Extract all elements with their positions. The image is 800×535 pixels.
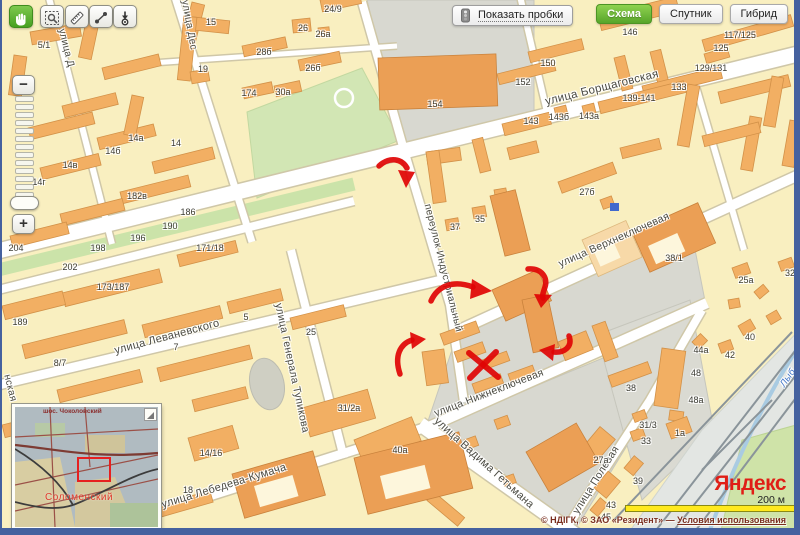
map-type-switch: Схема Спутник Гибрид [596,4,788,24]
measure-path-icon [93,10,109,26]
poi-marker [610,203,619,211]
zoom-out-button[interactable]: − [12,75,35,95]
zoom-tick[interactable] [15,136,34,142]
map-type-satellite-button[interactable]: Спутник [659,4,722,24]
show-traffic-button[interactable]: Показать пробки [452,5,573,26]
zoom-area-icon [44,10,60,26]
zoom-tick[interactable] [15,112,34,118]
zoom-tick[interactable] [15,120,34,126]
collapse-arrow-icon [147,412,154,419]
map-type-hybrid-button[interactable]: Гибрид [730,4,788,24]
traffic-light-icon [458,8,473,23]
ruler-icon [69,10,85,26]
minimap-toggle-button[interactable] [144,408,157,421]
zoom-tick[interactable] [15,96,34,102]
zoom-tick[interactable] [15,160,34,166]
zoom-tick[interactable] [15,128,34,134]
pan-tool-button[interactable] [9,5,33,28]
minimap-road-label: шос. Чоколовский [43,408,102,415]
show-traffic-label: Показать пробки [478,9,563,22]
probe-marker-icon [117,10,133,26]
scale-bar [625,505,799,512]
minimap-viewport-rect[interactable] [77,457,111,482]
zoom-tick[interactable] [15,176,34,182]
minimap[interactable]: шос. Чоколовский Соломенский [12,404,161,530]
hand-icon [13,10,29,26]
zoom-in-button[interactable]: + [12,214,35,234]
zoom-slider-track[interactable] [15,96,32,196]
ruler-tool-button[interactable] [65,5,89,28]
map-type-scheme-button[interactable]: Схема [596,4,652,24]
zoom-area-tool-button[interactable] [40,5,64,28]
zoom-tick[interactable] [15,144,34,150]
measure-path-tool-button[interactable] [89,5,113,28]
zoom-slider-handle[interactable] [10,196,39,210]
probe-marker-tool-button[interactable] [113,5,137,28]
zoom-tick[interactable] [15,184,34,190]
zoom-tick[interactable] [15,104,34,110]
zoom-tick[interactable] [15,152,34,158]
terms-of-use-link[interactable]: Условия использования [677,515,786,525]
zoom-tick[interactable] [15,168,34,174]
minimap-region-label: Соломенский [45,492,113,503]
yandex-logo[interactable]: Яндекс [714,472,786,496]
attribution: © НДІГК, © ЗАО «Резидент» — Условия испо… [541,515,786,525]
copyright-text: © НДІГК, © ЗАО «Резидент» — [541,515,677,525]
map-viewport: улица Борщаговскаяулица Верхнеключеваяул… [0,0,800,535]
